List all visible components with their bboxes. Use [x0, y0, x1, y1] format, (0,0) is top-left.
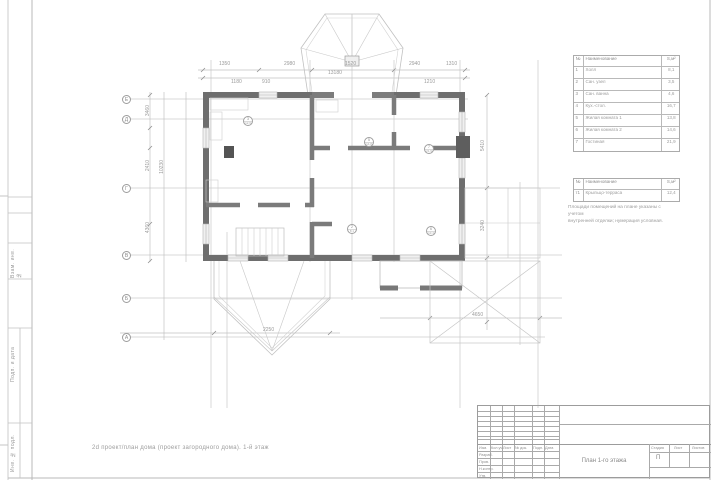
cell-num: 7	[574, 139, 584, 151]
room-tag: 7 21,9	[424, 144, 434, 154]
tb-col-koluch: Кол.уч.	[491, 446, 503, 450]
porch	[380, 261, 462, 288]
dimension-text: 2980	[284, 62, 295, 67]
tb-line	[478, 431, 559, 432]
tb-line	[649, 452, 711, 453]
cell-num: 2	[574, 79, 584, 90]
dimension-text: 4360	[146, 222, 151, 233]
tb-line	[478, 426, 559, 427]
tb-role-razrab: Разраб.	[479, 453, 493, 457]
tb-line	[478, 472, 559, 473]
room-area: 14,8	[365, 142, 373, 146]
cell-num: 3	[574, 91, 584, 102]
legend2-header-row: № Наименование S,м²	[574, 179, 679, 190]
room-tag: 3 12,6	[243, 116, 253, 126]
tb-line	[532, 406, 533, 479]
right-extension	[465, 188, 540, 258]
note-line-1: Площади помещений на плане указаны с уче…	[568, 204, 672, 218]
legend-row: 2 Сан. узел 3,5	[574, 79, 679, 91]
tb-sheets-label: Листов	[692, 446, 704, 450]
cell-area: 12,4	[662, 190, 679, 201]
tb-col-list: Лист	[503, 446, 511, 450]
tb-line	[649, 467, 711, 468]
tb-line	[689, 444, 690, 467]
note-text: Площади помещений на плане указаны с уче…	[568, 204, 672, 225]
dimension-text: 5410	[481, 140, 486, 151]
cell-area: 3,5	[662, 79, 679, 90]
cell-area: 13,8	[662, 115, 679, 126]
tb-stage-value: П	[656, 455, 660, 461]
room-area: 8,1	[348, 229, 356, 233]
dimension-text: 2250	[263, 328, 274, 333]
cell-name: Сан. ванна	[584, 91, 662, 102]
tb-line	[514, 406, 515, 479]
axis-bubble: Е	[122, 95, 131, 104]
dimension-text: 3460	[146, 105, 151, 116]
room-tag: 5 14,8	[364, 137, 374, 147]
axis-bubble: Д	[122, 115, 131, 124]
axis-bubble: Г	[122, 184, 131, 193]
cell-area: 8,1	[662, 67, 679, 78]
legend-row: 7 Гостиная 21,9	[574, 139, 679, 151]
tb-col-data: Дата	[545, 446, 553, 450]
title-block: Изм. Кол.уч. Лист № док. Подп. Дата Разр…	[477, 405, 710, 478]
tb-col-podp: Подп.	[533, 446, 543, 450]
cell-name: Сан. узел	[584, 79, 662, 90]
axis-bubble: Б	[122, 294, 131, 303]
cell-area: 21,9	[662, 139, 679, 151]
cell-num: 4	[574, 103, 584, 114]
legend-row: 1 Холл 8,1	[574, 67, 679, 79]
legend-row: 4 Кух.-стол. 16,7	[574, 103, 679, 115]
cell-num: 1	[574, 67, 584, 78]
dimension-text: 2940	[409, 62, 420, 67]
tb-line	[649, 444, 650, 479]
legend-header-num: №	[574, 56, 584, 66]
room-area: 21,9	[425, 149, 433, 153]
legend-row: 5 Жилая комната 1 13,8	[574, 115, 679, 127]
dimension-text: 4650	[472, 313, 483, 318]
cell-name: Кух.-стол.	[584, 103, 662, 114]
cell-num: 5	[574, 115, 584, 126]
axis-bubble: В	[122, 251, 131, 260]
dimension-text: 2410	[146, 160, 151, 171]
tb-line	[478, 436, 559, 437]
dimension-text: 1520	[345, 62, 356, 67]
room-area: 13,4	[427, 231, 435, 235]
staircase	[236, 228, 284, 256]
cell-name: Жилая комната 2	[584, 127, 662, 138]
legend-header-area: S,м²	[662, 56, 679, 66]
terrace-legend-table: № Наименование S,м² т1 Крыльцо-терраса 1…	[573, 178, 680, 202]
stamp-label-podp: Подп. и дата	[10, 340, 16, 382]
tb-line	[544, 406, 545, 479]
tb-line	[478, 458, 559, 459]
cell-num: т1	[574, 190, 584, 201]
room-area: 12,6	[244, 121, 252, 125]
dimension-text: 1310	[446, 62, 457, 67]
legend-header-row: № Наименование S,м²	[574, 56, 679, 67]
dimension-text: 1180	[231, 80, 242, 85]
dimension-text: 13180	[328, 71, 342, 76]
cell-name: Холл	[584, 67, 662, 78]
legend-row: 3 Сан. ванна 4,6	[574, 91, 679, 103]
axis-grid-lines	[131, 14, 562, 408]
room-legend-table: № Наименование S,м² 1 Холл 8,1 2 Сан. уз…	[573, 55, 680, 152]
tb-line	[478, 416, 559, 417]
sheet-caption: 2d проект/план дома (проект загородного …	[92, 445, 269, 451]
tb-line	[478, 444, 711, 445]
dimension-lines	[120, 70, 562, 340]
legend-header-name: Наименование	[584, 56, 662, 66]
legend2-header-name: Наименование	[584, 179, 662, 189]
room-tag: 6 13,4	[426, 226, 436, 236]
tb-line	[559, 406, 560, 479]
cell-num: 6	[574, 127, 584, 138]
cell-name: Крыльцо-терраса	[584, 190, 662, 201]
terrace-roof	[430, 261, 540, 343]
tb-stage-label: Стадия	[651, 446, 664, 450]
stamp-label-vzam: Взам. инв. №	[10, 248, 22, 278]
dimension-text: 10230	[160, 160, 165, 174]
tb-line	[478, 411, 559, 412]
drawing-sheet: Е Д Г В Б А 3 12,6 5 14,8 7 21,9 2 8,1 6…	[0, 0, 720, 480]
axis-bubble: А	[122, 333, 131, 342]
tb-line	[669, 444, 670, 467]
dimension-text: 910	[262, 80, 270, 85]
tb-line	[559, 424, 711, 425]
tb-line	[502, 406, 503, 479]
tb-line	[478, 421, 559, 422]
tb-role-utv: Утв.	[479, 474, 486, 478]
legend2-header-num: №	[574, 179, 584, 189]
bottom-bay-roof	[214, 261, 330, 355]
dimension-text: 1210	[424, 80, 435, 85]
cell-name: Жилая комната 1	[584, 115, 662, 126]
tb-sheet-label: Лист	[674, 446, 682, 450]
tb-role-prov: Пров.	[479, 460, 489, 464]
room-tag: 2 8,1	[347, 224, 357, 234]
tb-col-izm: Изм.	[479, 446, 487, 450]
stamp-label-inv: Инв. № подл.	[10, 434, 16, 472]
tb-line	[478, 439, 559, 440]
legend2-header-area: S,м²	[662, 179, 679, 189]
dimension-text: 1350	[219, 62, 230, 67]
tb-col-dok: № док.	[515, 446, 527, 450]
cell-area: 16,7	[662, 103, 679, 114]
cell-area: 4,6	[662, 91, 679, 102]
note-line-2: внутренней отделки; нумерация условная.	[568, 218, 672, 225]
cell-area: 14,6	[662, 127, 679, 138]
cell-name: Гостиная	[584, 139, 662, 151]
legend-row: 6 Жилая комната 2 14,6	[574, 127, 679, 139]
tb-role-nkontr: Н.контр.	[479, 467, 494, 471]
dimension-text: 3240	[481, 220, 486, 231]
tb-drawing-title: План 1-го этажа	[559, 458, 649, 464]
legend2-row: т1 Крыльцо-терраса 12,4	[574, 190, 679, 201]
